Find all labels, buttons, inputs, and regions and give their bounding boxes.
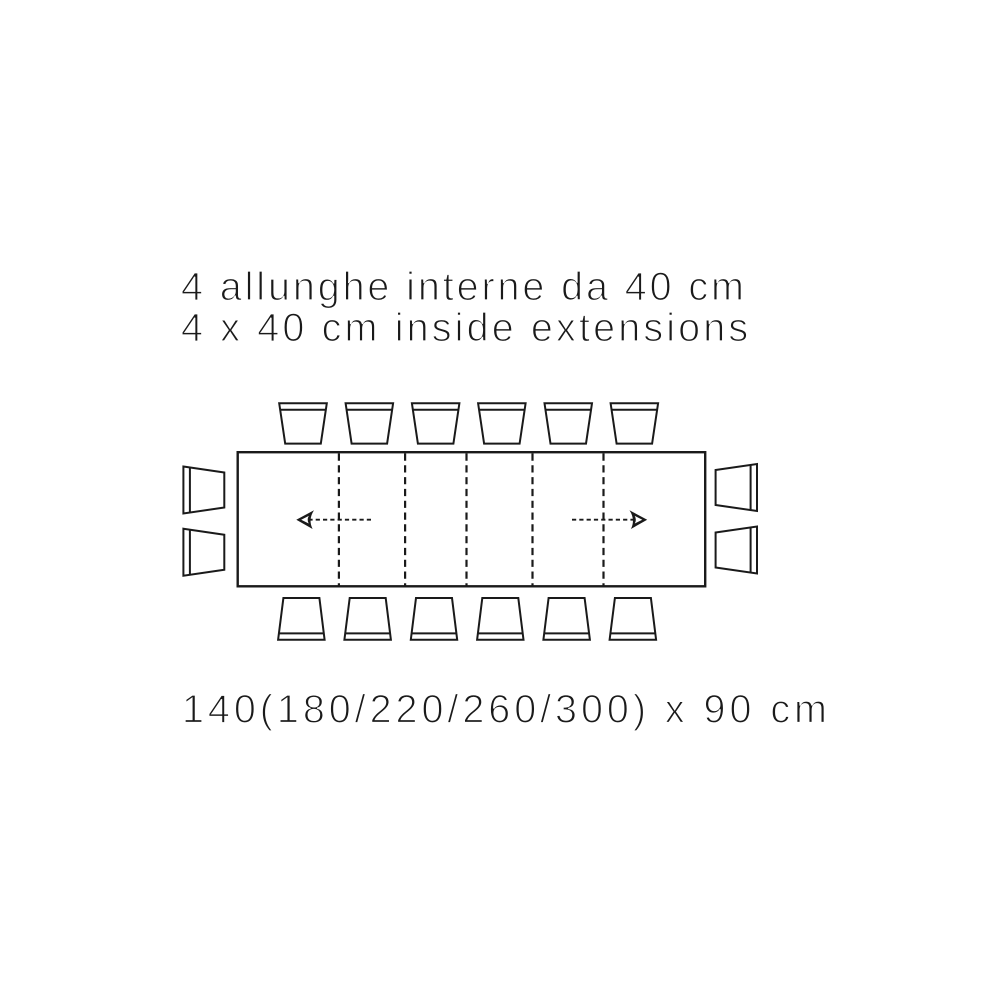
svg-text:140(180/220/260/300) x 90 cm: 140(180/220/260/300) x 90 cm (182, 688, 831, 732)
svg-text:4 allunghe interne da 40 cm: 4 allunghe interne da 40 cm (181, 265, 747, 309)
svg-text:4 x 40 cm inside extensions: 4 x 40 cm inside extensions (181, 306, 751, 350)
